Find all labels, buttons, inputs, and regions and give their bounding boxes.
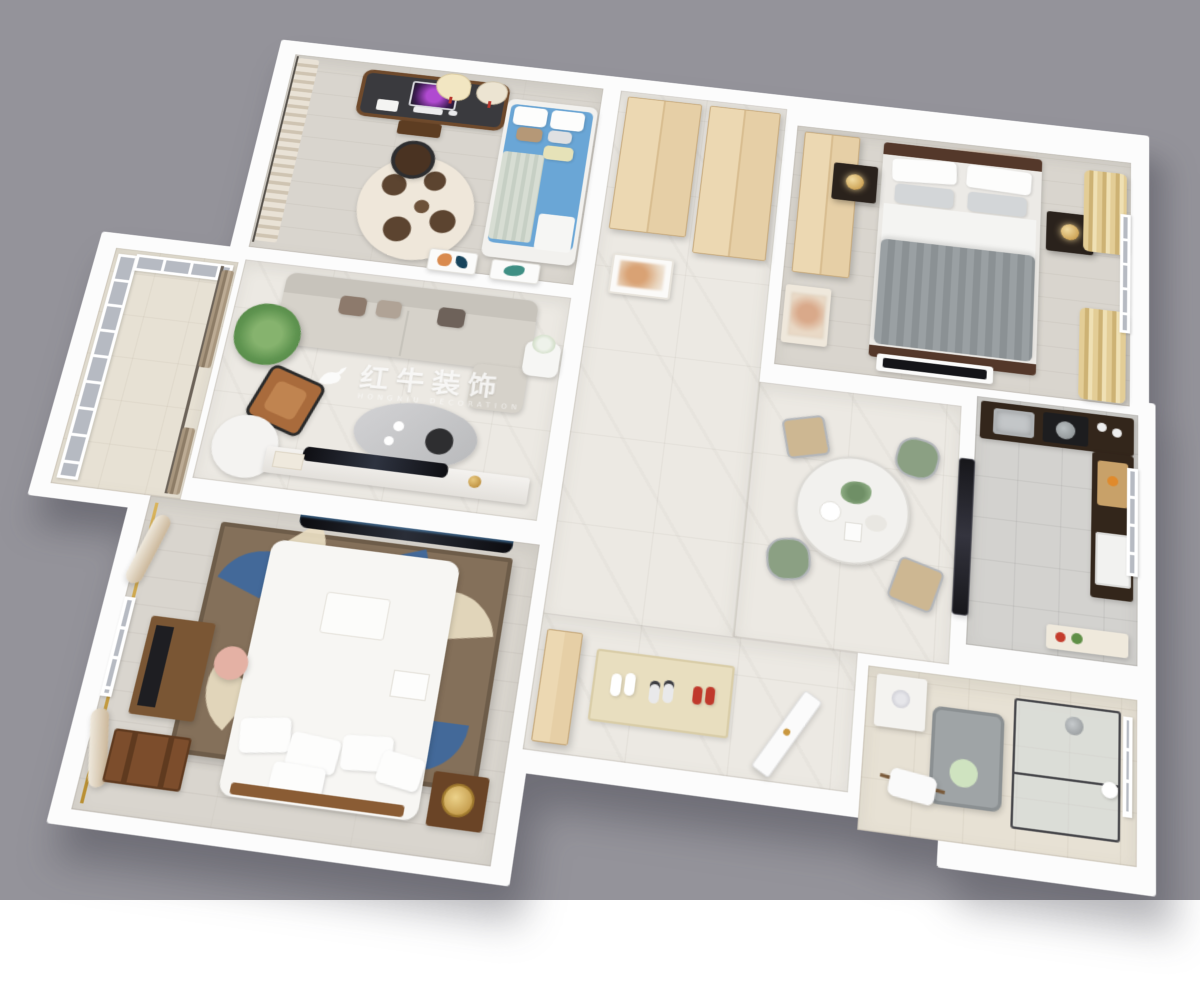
cup [392, 421, 404, 432]
armchair-cushion [262, 379, 309, 421]
master-window [1119, 214, 1130, 334]
shower-head [1065, 716, 1084, 737]
sofa-pillow-dark [436, 307, 466, 329]
pillow [374, 749, 427, 793]
doormat [588, 648, 736, 738]
plan-shadow-layer: 红牛装饰 HONGNIU DECORATION [0, 32, 1169, 982]
gold-lamp [845, 173, 864, 191]
pillow [238, 718, 291, 753]
pillow [549, 110, 585, 132]
chest-strap [157, 738, 174, 788]
room-bedroom2 [71, 496, 540, 867]
scene-background: 红牛装饰 HONGNIU DECORATION [0, 0, 1200, 900]
cooktop [1043, 412, 1089, 447]
console-book [272, 451, 305, 471]
canvas-art-teal [503, 264, 525, 277]
kitchen-window [1126, 468, 1138, 577]
kitchen-sink [993, 408, 1035, 439]
leather-chest [102, 728, 192, 792]
gold-ornament [467, 475, 482, 489]
green-basin [949, 757, 978, 789]
artwork-floral [617, 260, 666, 291]
green-chair [765, 537, 812, 580]
hall-wardrobe-left [609, 96, 703, 237]
room-master-bedroom [774, 126, 1131, 407]
canvas-art-dark [454, 256, 468, 269]
tomato [1055, 632, 1065, 643]
flower-vase [521, 340, 562, 379]
greens [1071, 632, 1083, 644]
magazine [389, 670, 430, 702]
sofa-pillow-taupe [375, 300, 403, 320]
room-study [249, 54, 604, 285]
dresser-artwork [788, 292, 827, 339]
cutting-board [1097, 460, 1128, 509]
jar [1112, 428, 1122, 438]
canvas-art-orange [436, 252, 453, 266]
sofa-seam [399, 311, 410, 356]
room-dining [733, 382, 961, 665]
slipper-dark-strap [662, 680, 675, 704]
bathtub [928, 705, 1005, 812]
front-door [751, 690, 823, 778]
vanity-mirror [137, 625, 174, 707]
vanity-decor [891, 689, 910, 709]
babys-breath-flowers [531, 333, 557, 355]
door-handle [782, 727, 792, 737]
breakfast-tray [319, 591, 391, 641]
sofa-chaise [466, 363, 528, 414]
bathroom-window [1123, 716, 1133, 818]
cup [383, 436, 394, 446]
plate [819, 500, 843, 523]
room-living: 红牛装饰 HONGNIU DECORATION [192, 259, 571, 521]
master-bed [868, 142, 1042, 376]
folded-blanket [533, 213, 575, 253]
shower-enclosure [1010, 698, 1121, 843]
green-chair [891, 433, 944, 485]
pillow [512, 106, 548, 128]
bath-vanity [874, 673, 928, 732]
slipper [623, 672, 636, 696]
slipper [609, 673, 622, 697]
table-plant [840, 480, 872, 506]
nightstand-west [831, 162, 878, 203]
hall-wardrobe-right [692, 106, 781, 262]
gold-lamp [1061, 223, 1080, 241]
room-bathroom [857, 665, 1137, 867]
hall-artwork [608, 253, 675, 300]
floor-plan: 红牛装饰 HONGNIU DECORATION [0, 32, 1169, 982]
rattan-chair [886, 555, 946, 615]
chest-strap [121, 733, 139, 783]
jar [1097, 422, 1107, 432]
striped-duvet [874, 238, 1036, 362]
slipper-dark-strap [648, 680, 661, 704]
rattan-chair [781, 415, 831, 459]
headboard-cushion [892, 158, 957, 185]
room-kitchen [966, 396, 1138, 666]
master-wardrobe [791, 131, 860, 278]
table-tray [423, 427, 455, 456]
pillow-gray [547, 130, 573, 145]
pillow-khaki [515, 126, 543, 142]
slipper-red [705, 686, 716, 705]
pot [1056, 420, 1076, 440]
menu-card [844, 522, 863, 543]
kitchen-low-cabinet [1046, 624, 1128, 659]
bowl [864, 514, 887, 533]
sofa-pillow-brown [337, 295, 368, 317]
nightstand-clock [425, 771, 490, 833]
papers [376, 99, 400, 112]
gold-clock [439, 782, 477, 820]
mouse [448, 110, 458, 116]
orange-fruit [1107, 476, 1118, 487]
master-dresser [780, 284, 831, 347]
slipper-red [692, 686, 703, 705]
entry-shoe-wardrobe [531, 629, 583, 746]
